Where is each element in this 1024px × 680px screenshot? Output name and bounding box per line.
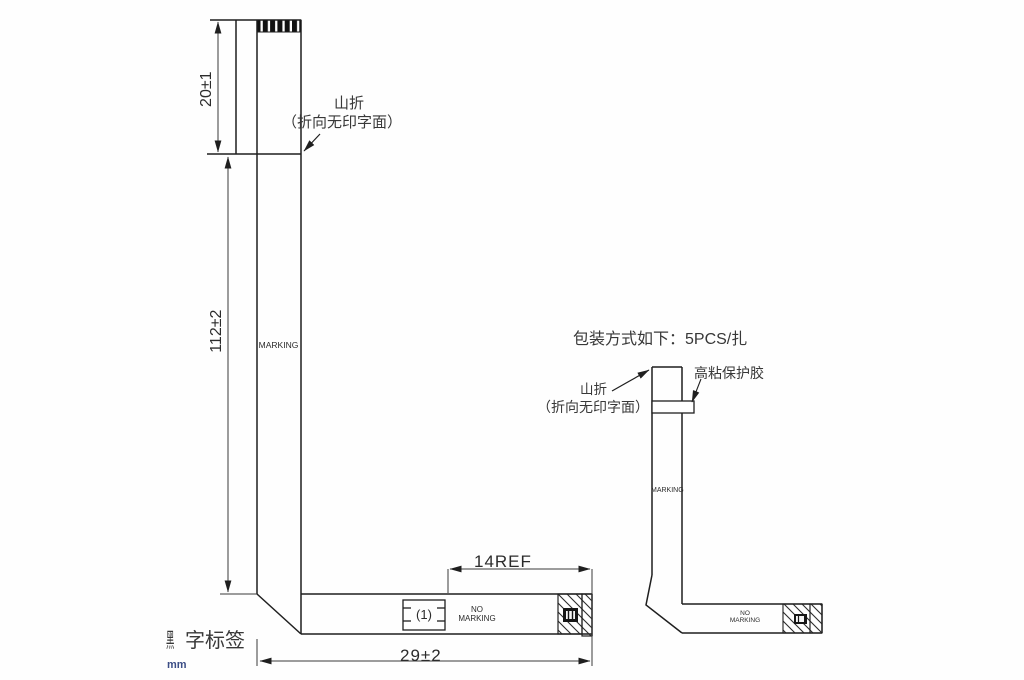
right-view-connector-stiffener	[783, 604, 822, 633]
left-dim-side-label: 112±2	[208, 286, 226, 376]
left-view-cable-outline	[207, 20, 592, 636]
technical-drawing: 20±1 112±2 14REF 29±2 山折 （折向无印字面） MARKIN…	[0, 0, 1024, 680]
left-fold-note-detail: （折向无印字面）	[282, 114, 402, 131]
left-ref-box-label: (1)	[403, 600, 445, 630]
left-view-connector-stiffener	[558, 594, 592, 636]
black-text-label-rest: 字标签	[185, 630, 245, 652]
right-fold-note-detail: （折向无印字面）	[537, 399, 649, 415]
left-dim-top-label: 20±1	[198, 54, 216, 124]
right-view-protective-tape	[652, 401, 694, 413]
black-text-label: 黑字标签	[166, 607, 245, 653]
left-view-fold-leader-arrow	[304, 134, 320, 151]
packaging-note: 包装方式如下：5PCS/扎	[573, 331, 747, 349]
tape-note: 高粘保护胶	[694, 365, 764, 381]
unit-label: mm	[167, 659, 187, 672]
black-text-label-prefix: 黑	[166, 630, 174, 653]
left-dim-bottom-label: 29±2	[400, 646, 442, 666]
drawing-linework	[0, 0, 1024, 680]
left-fold-note-title: 山折	[334, 95, 364, 112]
right-marking-text: MARKING	[651, 487, 683, 495]
right-view-fold-leader-arrow	[612, 370, 649, 391]
right-fold-note-title: 山折	[580, 382, 607, 398]
right-no-marking-text: NO MARKING	[725, 610, 765, 624]
left-marking-text: MARKING	[255, 341, 302, 351]
left-dim-ref-label: 14REF	[474, 552, 532, 572]
right-view-tape-leader-arrow	[692, 379, 701, 402]
left-no-marking-text: NO MARKING	[452, 605, 502, 623]
left-view-connector-contacts	[257, 20, 301, 32]
